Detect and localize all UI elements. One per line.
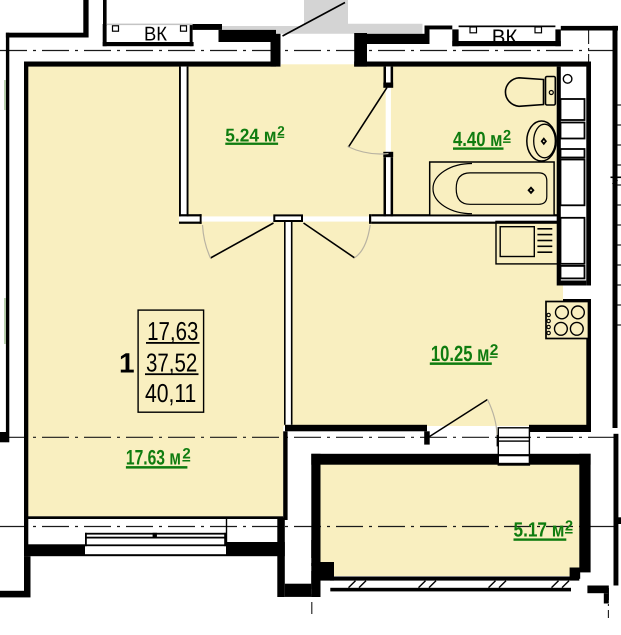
svg-text:ВК: ВК [144,24,167,46]
svg-text:5.17 м: 5.17 м [514,519,565,542]
svg-text:10.25 м: 10.25 м [431,341,490,366]
svg-text:ВК: ВК [492,26,518,49]
svg-text:5.24 м: 5.24 м [225,124,276,145]
svg-text:37,52: 37,52 [146,347,197,377]
svg-text:17,63: 17,63 [147,316,198,346]
svg-text:1: 1 [119,347,135,378]
svg-text:40,11: 40,11 [145,378,196,408]
svg-text:2: 2 [277,123,285,138]
